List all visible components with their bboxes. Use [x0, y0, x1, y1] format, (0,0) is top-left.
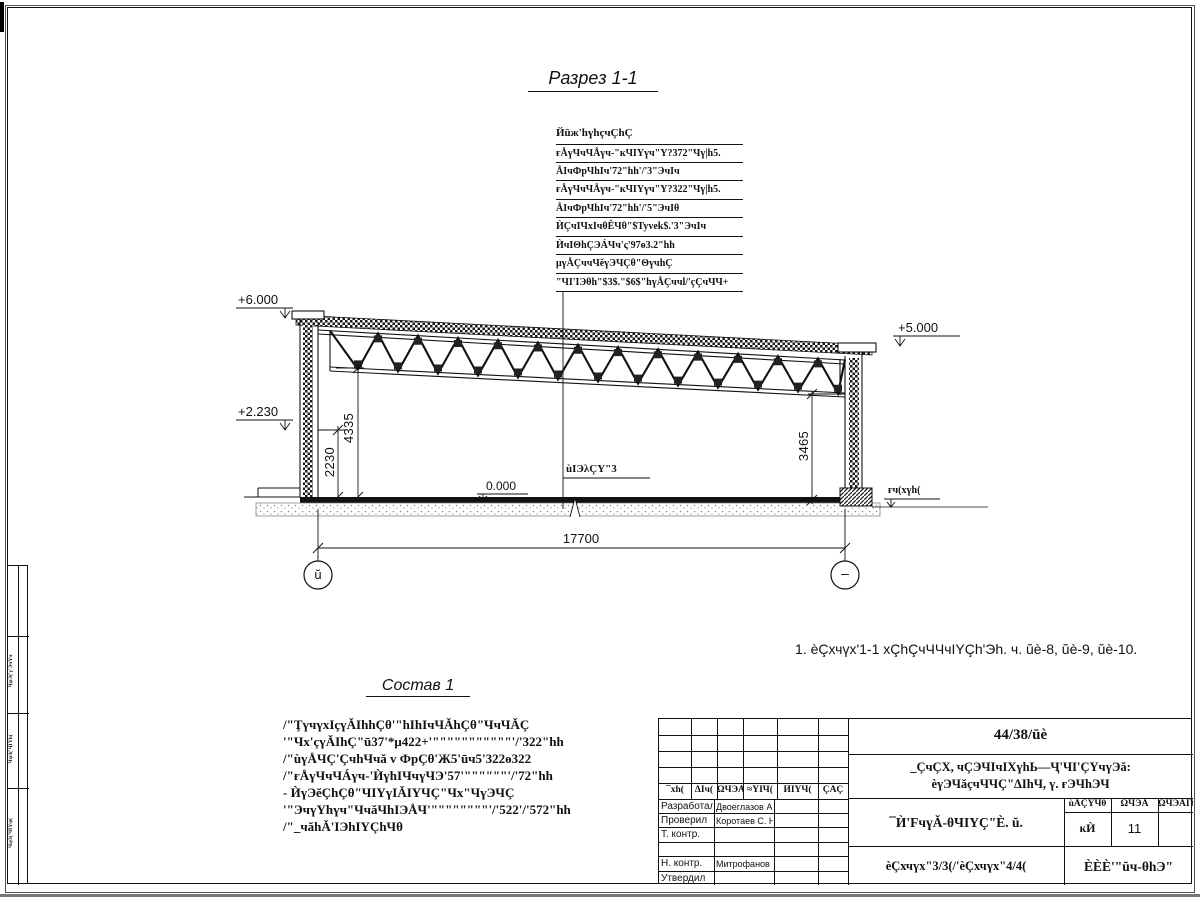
dim-left-truss: 4335	[341, 406, 355, 450]
callout-row: ЍчIΘhÇЭÁЧч'ς'97ө3.2"hh	[556, 237, 743, 256]
axis-bubble-right-label: –	[831, 565, 859, 581]
callout-row: ғÅүЧчЧÅүч-"кЧIYүч"Y?322"Чү|h5.	[556, 181, 743, 200]
callout-row: "ЧI'IЭθh"$3$."$6$"hүÅÇччl/'çÇчЧЧ+	[556, 274, 743, 293]
list-header: ΩЧЭǍ	[1111, 799, 1158, 809]
section-title: Разрез 1-1	[528, 68, 658, 92]
rev-header: ≈YIЧ(	[743, 785, 777, 795]
list-value: 11	[1111, 821, 1158, 836]
floor-leader-label: ùIЭλÇY"3	[566, 463, 617, 475]
sig-role: Разработал	[661, 801, 713, 812]
callout-row: ÅIчФрЧhIч'72"hh'/'5"ЭчIθ	[556, 200, 743, 219]
rev-header: ΔIч(	[691, 785, 717, 795]
drawing-sheet: ҶψЭ('γ'ЭчYч ЧψӞ('ҶIYh( ЧψӞ('ЧIYψ(	[0, 0, 1200, 900]
dim-right-truss: 3465	[796, 424, 810, 468]
sostav-line: '"ЭчүYhүч"ЧчăЧhIЭÅЧ'""""""""'/'522'/'572…	[283, 801, 628, 818]
sostav-line: /"ùүÅЧÇ'ÇчhЧчă v ФрÇθ'Ж5'ūч5'322ө322	[283, 750, 628, 767]
object-name: ¯Ѝ'FчүǍ-θЧIYÇ"È. ŭ.	[848, 815, 1064, 831]
elevation-top-right: +5.000	[898, 320, 938, 335]
sostav-lines: /"ŢүчүхIçүǍIhhÇθ'"hIhIчЧǍhÇθ"ЧчЧǍÇ '"Чх'…	[283, 716, 628, 835]
company-name: ÈÈÈ'"ŭч-θhЭ"	[1064, 859, 1193, 875]
title-block: ¯хh( ΔIч( ΩЧЭǍ ≈YIЧ( ЍIYЧ( ÇǍÇ Разработа…	[658, 718, 1192, 884]
lists-header: ΩЧЭǍIY	[1158, 799, 1193, 809]
project-name-line1: _ÇчÇХ, чÇЭЧIчIХүhЬ—Ҷ'ЧI'ÇYчүЭă:	[848, 760, 1193, 775]
sostav-title: Состав 1	[366, 677, 470, 697]
sostav-line: - ЍүЭĕÇhÇθ"ЧIYүIǍIYЧÇ"Чх"ЧүЭЧÇ	[283, 784, 628, 801]
rev-header: ÇǍÇ	[818, 785, 848, 795]
dim-left-inner: 2230	[322, 440, 336, 484]
rev-header: ΩЧЭǍ	[717, 785, 743, 795]
project-name-line2: èүЭЧăçчЧЧÇ"ΔIhЧ, ү. ғЭЧhЭЧ	[848, 777, 1193, 792]
axis-bubble-left-label: ŭ	[304, 567, 332, 582]
sig-role: Т. контр.	[661, 829, 713, 840]
sostav-line: /"ғÅүЧчЧÁүч-'ЍүhIЧчүЧЭ'57'""""""'/'72"hh	[283, 767, 628, 784]
sig-name: Коротаев С. Н.	[716, 816, 773, 826]
stage-value: ĸЍ	[1064, 821, 1111, 836]
callout-header: Йūж'hүhçчÇhÇ	[556, 127, 743, 144]
elevation-mid-left: +2.230	[238, 404, 278, 419]
sig-role: Проверил	[661, 815, 713, 826]
sig-role: Утвердил	[661, 873, 713, 884]
elevation-ground: ғч(хүh(	[888, 485, 920, 496]
elevation-floor: 0.000	[486, 479, 516, 493]
callout-row: ЍÇчIЧхIчθÊЧθ"$Tyvek$.'3"ЭчIч	[556, 218, 743, 237]
sostav-line: /"_чăhǍ'IЭhIYÇhЧθ	[283, 818, 628, 835]
dim-span: 17700	[546, 531, 616, 546]
callout-row: μүÅÇччЧĕүЭЧÇθ"ΘүчhÇ	[556, 255, 743, 274]
callout-row: ÅIчФрЧhIч'72"hh'/'3"ЭчIч	[556, 163, 743, 182]
elevation-top-left: +6.000	[238, 292, 278, 307]
sheet-caption: èÇхчүх"3/3(/'èÇхчүх"4/4(	[848, 859, 1064, 874]
roof-callout: Йūж'hүhçчÇhÇ ғÅүЧчЧÅүч-"кЧIYүч"Y?372"Чү|…	[556, 127, 743, 292]
callout-row: ғÅүЧчЧÅүч-"кЧIYүч"Y?372"Чү|h5.	[556, 144, 743, 163]
note-text: 1. èÇхчүх'1-1 хÇhÇчЧЧчIYÇh'Эh. ч. ŭè-8, …	[795, 641, 1175, 657]
rev-header: ЍIYЧ(	[777, 785, 818, 795]
sig-name: Митрофанов Я. А.	[716, 859, 773, 869]
sig-role: Н. контр.	[661, 858, 713, 869]
stage-header: ùǍÇYЧθ	[1064, 799, 1111, 809]
sostav-line: /"ŢүчүхIçүǍIhhÇθ'"hIhIчЧǍhÇθ"ЧчЧǍÇ	[283, 716, 628, 733]
doc-number: 44/38/ūè	[848, 727, 1193, 744]
sostav-line: '"Чх'çүǍIhÇ"ū37'*μ422+'"""""""""""'/'322…	[283, 733, 628, 750]
sig-name: Двоеглазов А. В.	[716, 802, 773, 812]
rev-header: ¯хh(	[659, 785, 691, 795]
